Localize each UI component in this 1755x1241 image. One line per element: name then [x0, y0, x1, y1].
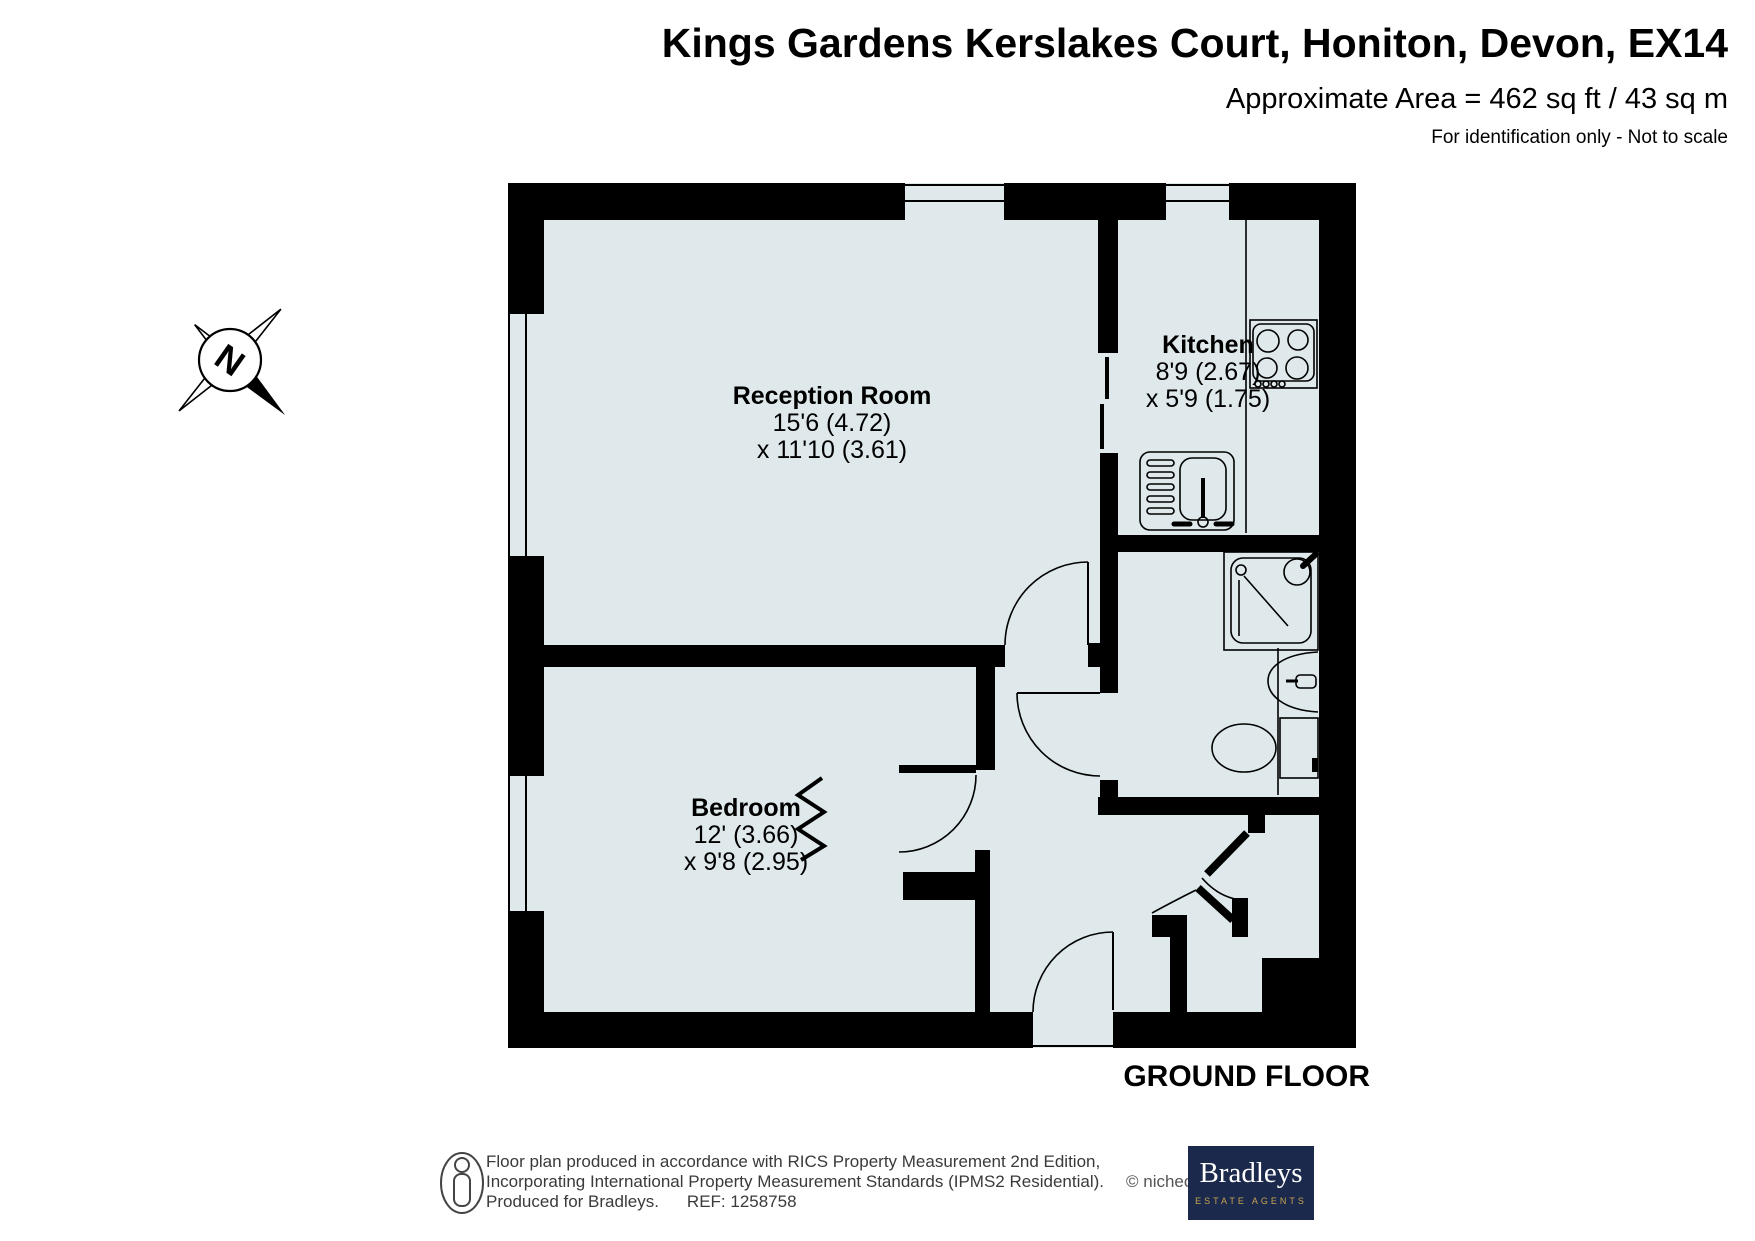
floor-plan-graphic	[0, 0, 1755, 1241]
ref-number: REF: 1258758	[687, 1192, 797, 1211]
bedroom-name: Bedroom	[684, 795, 808, 822]
kitchen-dim-2: x 5'9 (1.75)	[1146, 386, 1270, 413]
person-icon	[438, 1150, 486, 1216]
footer-line-2: Incorporating International Property Mea…	[486, 1172, 1104, 1191]
brand-name: Bradleys	[1188, 1157, 1314, 1190]
bedroom-dim-1: 12' (3.66)	[684, 822, 808, 849]
footer: Floor plan produced in accordance with R…	[486, 1152, 1263, 1212]
kitchen-dim-1: 8'9 (2.67)	[1146, 359, 1270, 386]
footer-line-2-row: Incorporating International Property Mea…	[486, 1172, 1263, 1192]
ground-floor-label: GROUND FLOOR	[1123, 1060, 1370, 1094]
reception-name: Reception Room	[733, 383, 932, 410]
footer-line-3: Produced for Bradleys.	[486, 1192, 659, 1211]
footer-line-1: Floor plan produced in accordance with R…	[486, 1152, 1263, 1172]
reception-dim-1: 15'6 (4.72)	[733, 410, 932, 437]
room-label-kitchen: Kitchen 8'9 (2.67) x 5'9 (1.75)	[1146, 332, 1270, 413]
room-label-bedroom: Bedroom 12' (3.66) x 9'8 (2.95)	[684, 795, 808, 876]
brand-tagline: ESTATE AGENTS	[1188, 1196, 1314, 1206]
bedroom-dim-2: x 9'8 (2.95)	[684, 849, 808, 876]
kitchen-name: Kitchen	[1146, 332, 1270, 359]
page: { "header": { "title": "Kings Gardens Ke…	[0, 0, 1755, 1241]
bradleys-logo: Bradleys ESTATE AGENTS	[1188, 1146, 1314, 1220]
room-label-reception: Reception Room 15'6 (4.72) x 11'10 (3.61…	[733, 383, 932, 464]
reception-dim-2: x 11'10 (3.61)	[733, 437, 932, 464]
footer-line-3-row: Produced for Bradleys.REF: 1258758	[486, 1192, 1263, 1212]
